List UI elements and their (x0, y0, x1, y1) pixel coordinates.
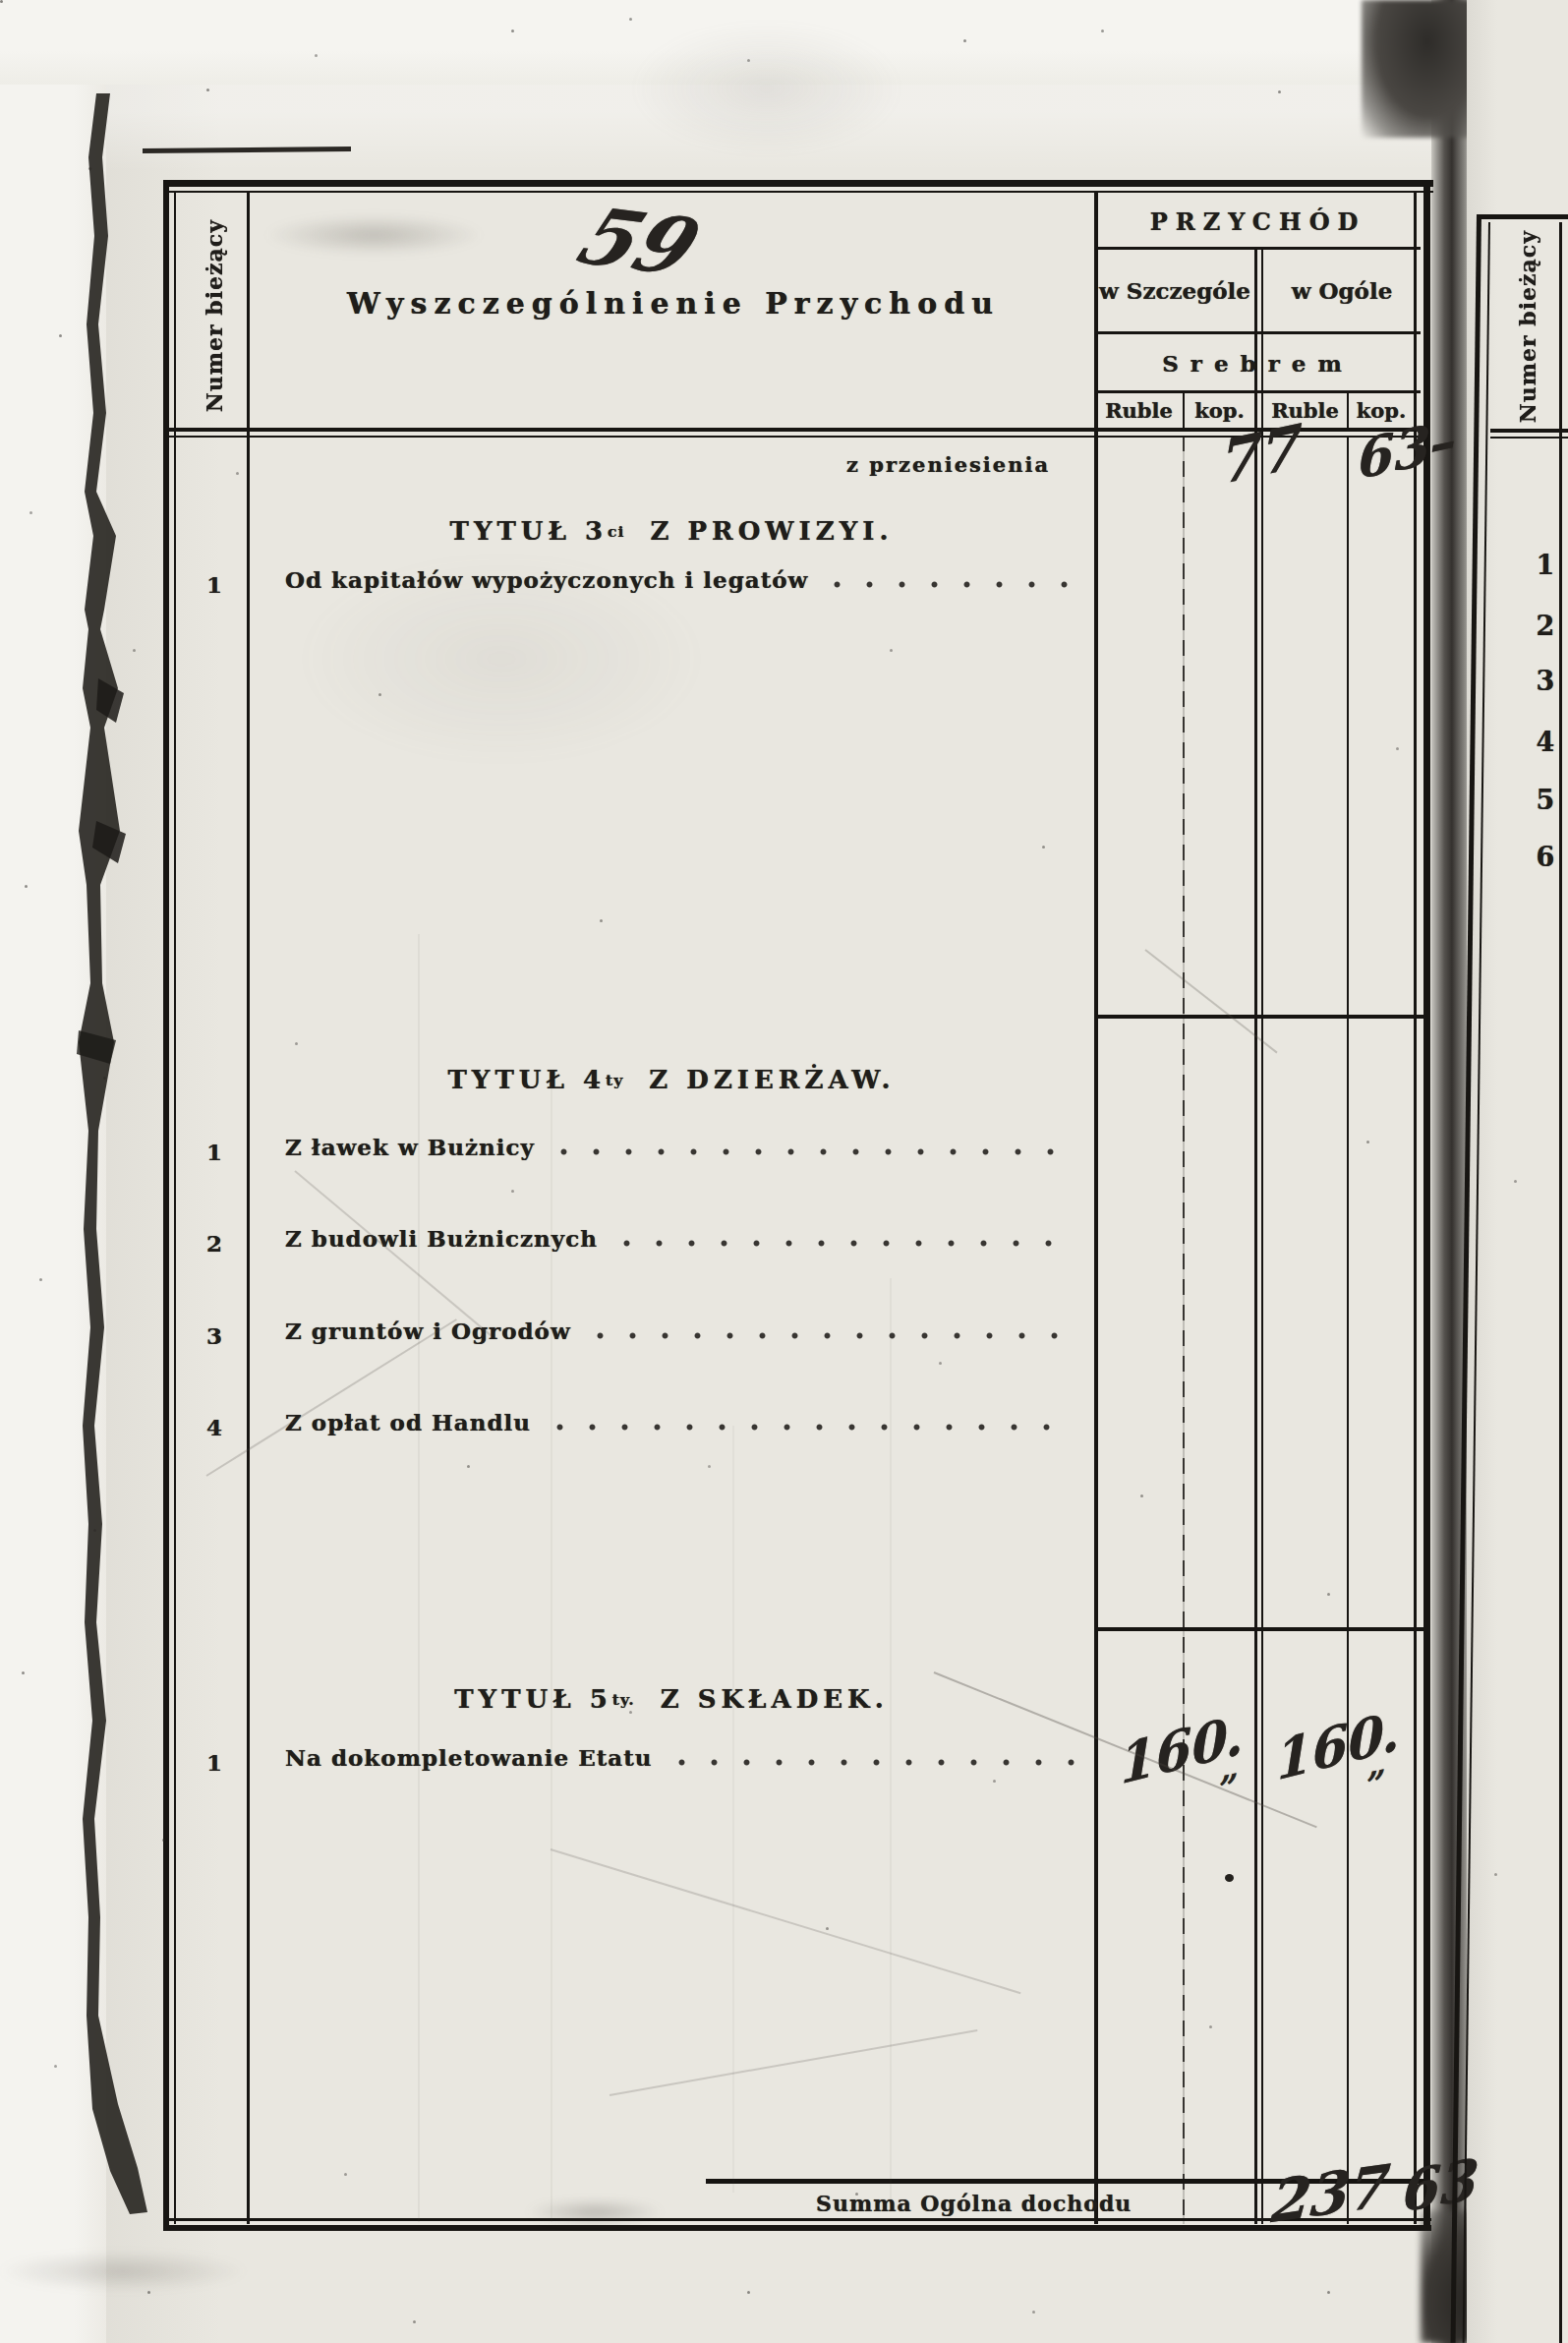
summary-ogole-kop: 63 (1399, 2146, 1475, 2226)
next-page-header-rule-a (1490, 429, 1568, 433)
table-bottom-border-b (167, 2225, 1431, 2231)
row-number: 4 (183, 1411, 246, 1442)
dot-leader (560, 1148, 1075, 1155)
dust-specks (0, 0, 3, 3)
faint-ghost-print-bottom (526, 2198, 664, 2226)
table-left-border-outer (163, 180, 169, 2231)
szczegole-cell-bottom (1095, 331, 1421, 334)
next-page-row-number: 3 (1529, 665, 1562, 696)
section-4-title-prefix: TYTUŁ 4 (448, 1065, 607, 1094)
row-number: 1 (183, 568, 246, 600)
section-3-title: TYTUŁ 3ciZ PROWIZYI. (248, 511, 1095, 551)
section-3-title-sup: ci (608, 522, 624, 541)
next-page-row-number: 5 (1529, 784, 1562, 815)
table-left-border-inner (174, 191, 176, 2224)
numer-biezacy-cell: Numer bieżący (183, 206, 246, 425)
amounts-left-divider (1094, 191, 1098, 2224)
table-right-border-inner (1414, 191, 1417, 2224)
section2-end-rule (1095, 1627, 1423, 1631)
table-row: Na dokompletowanie Etatu (285, 1744, 1083, 1771)
section-3-title-prefix: TYTUŁ 3 (450, 516, 609, 546)
szczegole-kop-divider (1183, 436, 1185, 2224)
row-number: 1 (183, 1746, 246, 1778)
col-total-header: w Ogóle (1263, 270, 1421, 310)
table-bottom-border-a (167, 2218, 1431, 2221)
numer-biezacy-label: Numer bieżący (202, 219, 227, 412)
section-4-title: TYTUŁ 4tyZ DZIERŻAW. (248, 1060, 1095, 1099)
table-row: Z gruntów i Ogrodów (285, 1318, 1083, 1344)
table-right-border-outer (1423, 180, 1430, 2231)
table-row: Z opłat od Handlu (285, 1409, 1083, 1435)
dot-leader (597, 1332, 1075, 1339)
next-page-numer-label: Numer bieżący (1515, 230, 1540, 423)
row-number: 2 (183, 1227, 246, 1259)
row-label: Z gruntów i Ogrodów (285, 1318, 571, 1344)
description-header: Wyszczególnienie Przychodu (256, 281, 1091, 324)
section-5-title-sup: ty. (612, 1690, 635, 1709)
przychod-cell-bottom (1095, 247, 1421, 250)
faint-ghost-writing (263, 214, 485, 256)
scanned-ledger-spread: { "colors": { "paper": "#e9e7e0", "ink":… (0, 0, 1568, 2343)
row-number: 3 (183, 1319, 246, 1351)
dot-leader (834, 581, 1075, 588)
dot-leader (678, 1759, 1075, 1766)
next-page-row-number: 2 (1529, 610, 1562, 641)
section-4-title-rest: Z DZIERŻAW. (649, 1065, 895, 1094)
currency-header: Srebrem (1095, 344, 1421, 381)
next-page-top-border (1480, 214, 1568, 219)
income-header: PRZYCHÓD (1095, 200, 1421, 243)
row-label: Na dokompletowanie Etatu (285, 1744, 653, 1771)
dot-leader (556, 1424, 1075, 1431)
table-row: Z budowli Bużnicznych (285, 1225, 1083, 1252)
section-5-title-prefix: TYTUŁ 5 (454, 1684, 612, 1714)
paper-crease (418, 934, 420, 2222)
next-page-numer-divider (1559, 222, 1562, 2343)
watermark-ghost (295, 551, 708, 767)
skladki-szczegole-kop: „ (1218, 1746, 1239, 1790)
next-page-row-number: 1 (1529, 549, 1562, 580)
section-4-title-sup: ty (606, 1071, 623, 1089)
paper-crease (732, 1426, 734, 2193)
table-top-border-thick (165, 180, 1433, 187)
row-label: Z ławek w Bużnicy (285, 1134, 535, 1160)
next-page-header-rule-b (1490, 437, 1568, 439)
srebrem-cell-bottom (1095, 390, 1421, 393)
mid-divider-b (1261, 247, 1263, 2224)
faint-ghost-print-bottom-left (0, 2252, 246, 2291)
subcol-ruble-1: Ruble (1095, 395, 1183, 425)
summary-label: Summa Ogólna dochodu (816, 2191, 1091, 2216)
ink-blot (1225, 1874, 1234, 1882)
dot-leader (623, 1240, 1075, 1247)
mid-divider-a (1254, 247, 1257, 2224)
table-top-border-thin (165, 191, 1433, 193)
ogole-kop-divider (1347, 436, 1349, 2224)
table-row: Z ławek w Bużnicy (285, 1134, 1083, 1160)
carryover-label: z przeniesienia (786, 452, 1050, 477)
row-label: Z opłat od Handlu (285, 1409, 531, 1435)
section1-end-rule (1095, 1015, 1423, 1019)
numer-column-divider (247, 191, 250, 2224)
next-page-row-number: 4 (1529, 726, 1562, 757)
subcol-kop-1: kop. (1185, 395, 1254, 425)
row-number: 1 (183, 1136, 246, 1167)
next-page-row-number: 6 (1529, 841, 1562, 872)
paper-crease (551, 1082, 552, 2222)
col-detail-header: w Szczególe (1095, 270, 1254, 310)
paper-crease (890, 1278, 892, 2202)
watermark-ghost (629, 20, 904, 157)
next-page-numer-cell: Numer bieżący (1498, 228, 1557, 425)
section-5-title-rest: Z SKŁADEK. (661, 1684, 889, 1714)
section-3-title-rest: Z PROWIZYI. (651, 516, 894, 546)
skladki-ogole-kop: „ (1365, 1742, 1386, 1787)
